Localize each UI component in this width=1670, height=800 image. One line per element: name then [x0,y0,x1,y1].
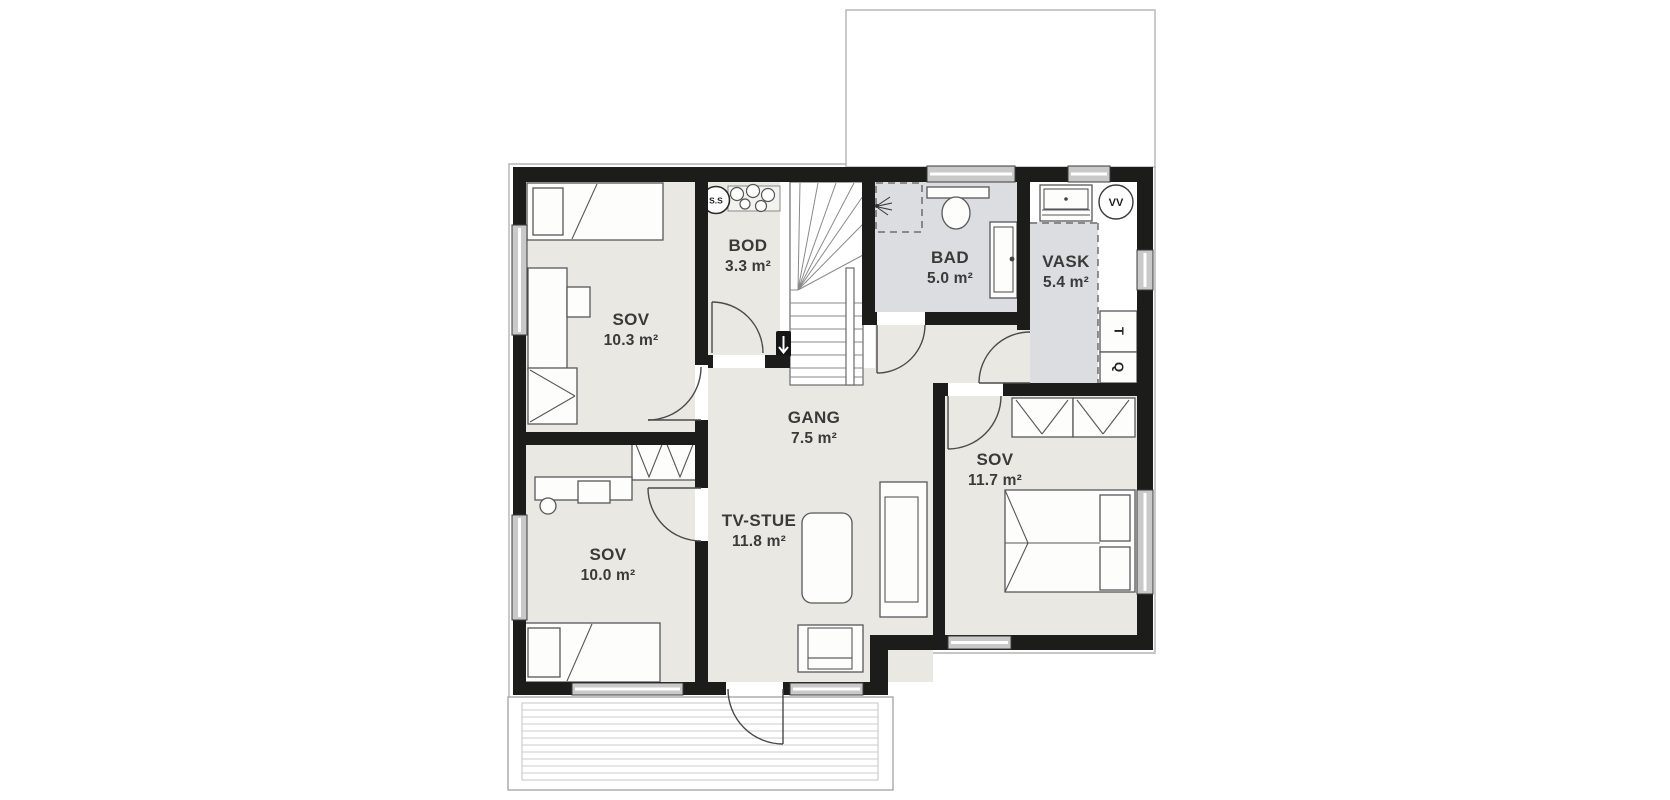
washer-icon: Q [1100,352,1137,383]
wall-bod-bottom-b [765,355,790,368]
window-vask-top [1068,166,1110,182]
desk-sov103 [528,268,567,370]
wall-step [870,635,888,695]
dryer-label: T [1112,327,1127,335]
coffee-table-tvstue [802,513,852,603]
ss-unit-label: S.S [709,196,723,206]
wall-tvstue-sov117 [933,383,945,635]
terrace-deck [508,697,893,790]
wall-bod-bottom-a [708,355,713,368]
wardrobe-sov117 [1012,398,1135,437]
window-sov100-bottom [572,683,683,695]
washer-label: Q [1112,362,1127,372]
roof-overhang-outline [846,10,1155,167]
staircase [776,182,863,385]
sofa-tvstue [880,482,927,617]
room-label-sov-117: SOV 11.7 m² [968,449,1022,491]
room-label-sov-103: SOV 10.3 m² [604,309,659,351]
wall-v1-a [695,167,708,365]
window-sov103-left [512,225,527,335]
chair-sov103 [567,287,590,317]
bed-double-sov117 [1005,490,1135,592]
chair-sov100 [578,481,610,503]
room-label-bad: BAD 5.0 m² [927,247,973,289]
room-name: SOV [581,544,636,566]
room-area: 5.4 m² [1042,273,1090,293]
wall-v1-b [695,420,708,488]
stair-direction-marker [776,331,791,357]
window-tvstue-bottom [790,683,863,695]
room-label-gang: GANG 7.5 m² [788,407,841,449]
wall-v1-c [695,541,708,695]
dryer-icon: T [1100,311,1137,352]
floor-gang-alcove [875,325,1030,383]
room-name: BAD [927,247,973,269]
room-name: SOV [968,449,1022,471]
wall-sov117-top-b [1003,383,1150,396]
room-name: SOV [604,309,659,331]
room-name: VASK [1042,251,1090,273]
room-label-bod: BOD 3.3 m² [725,235,771,277]
wall-bad-bottom-b [925,312,1017,325]
room-area: 10.3 m² [604,331,659,351]
room-name: BOD [725,235,771,257]
stool-sov100 [540,498,556,514]
room-label-tv-stue: TV-STUE 11.8 m² [722,510,797,552]
wall-h1-bedrooms [513,432,708,445]
room-area: 11.8 m² [722,532,797,552]
floorplan-drawing: VV T Q S.S [0,0,1670,800]
wall-outer-top [513,167,1150,182]
room-label-vask: VASK 5.4 m² [1042,251,1090,293]
wall-stairs-bad [862,167,875,325]
wall-bad-vask [1017,167,1030,330]
window-sov117-right [1137,490,1153,594]
wardrobe-sov100 [632,440,697,480]
room-area: 10.0 m² [581,566,636,586]
room-area: 11.7 m² [968,471,1022,491]
armchair-tvstue [798,625,863,672]
water-heater-icon: VV [1099,185,1133,219]
room-name: GANG [788,407,841,429]
room-label-sov-100: SOV 10.0 m² [581,544,636,586]
room-area: 3.3 m² [725,257,771,277]
wardrobe-sov103 [528,368,577,424]
sink-icon [1040,185,1092,221]
bod-fixtures: S.S [703,185,781,214]
bed-single-sov100 [522,623,660,682]
window-bad-top [927,166,1015,182]
room-area: 5.0 m² [927,269,973,289]
bed-single-sov103 [527,183,663,240]
floorplan-canvas: VV T Q S.S [0,0,1670,800]
room-area: 7.5 m² [788,429,841,449]
window-sov100-left [512,515,527,620]
room-name: TV-STUE [722,510,797,532]
window-sov117-bottom [948,636,1011,649]
stair-railing [846,268,854,385]
window-vask-right [1137,250,1153,290]
floor-vask-wet-zone [1030,222,1098,383]
water-heater-label: VV [1109,197,1124,209]
wall-bad-bottom-a [862,312,877,325]
shower-cabinet-icon [990,222,1017,298]
